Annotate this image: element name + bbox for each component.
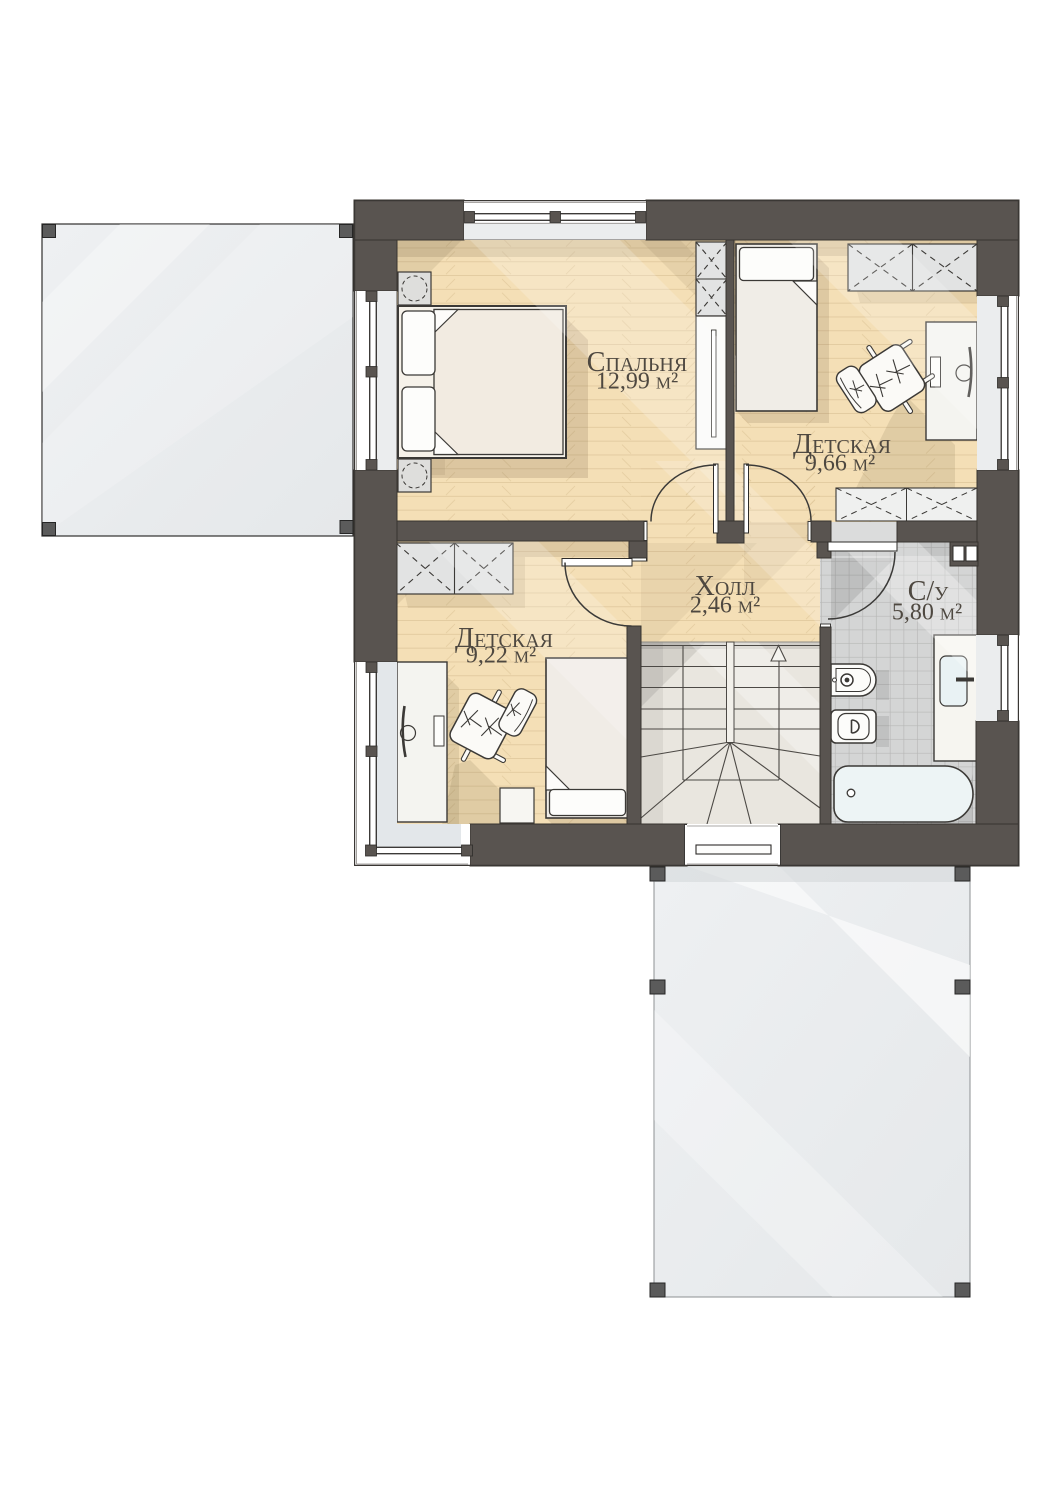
svg-text:9,66 м²: 9,66 м²	[805, 451, 875, 477]
svg-text:2,46 м²: 2,46 м²	[690, 593, 760, 619]
svg-text:9,22 м²: 9,22 м²	[466, 643, 536, 669]
svg-text:12,99 м²: 12,99 м²	[596, 369, 678, 395]
svg-text:5,80 м²: 5,80 м²	[892, 600, 962, 626]
